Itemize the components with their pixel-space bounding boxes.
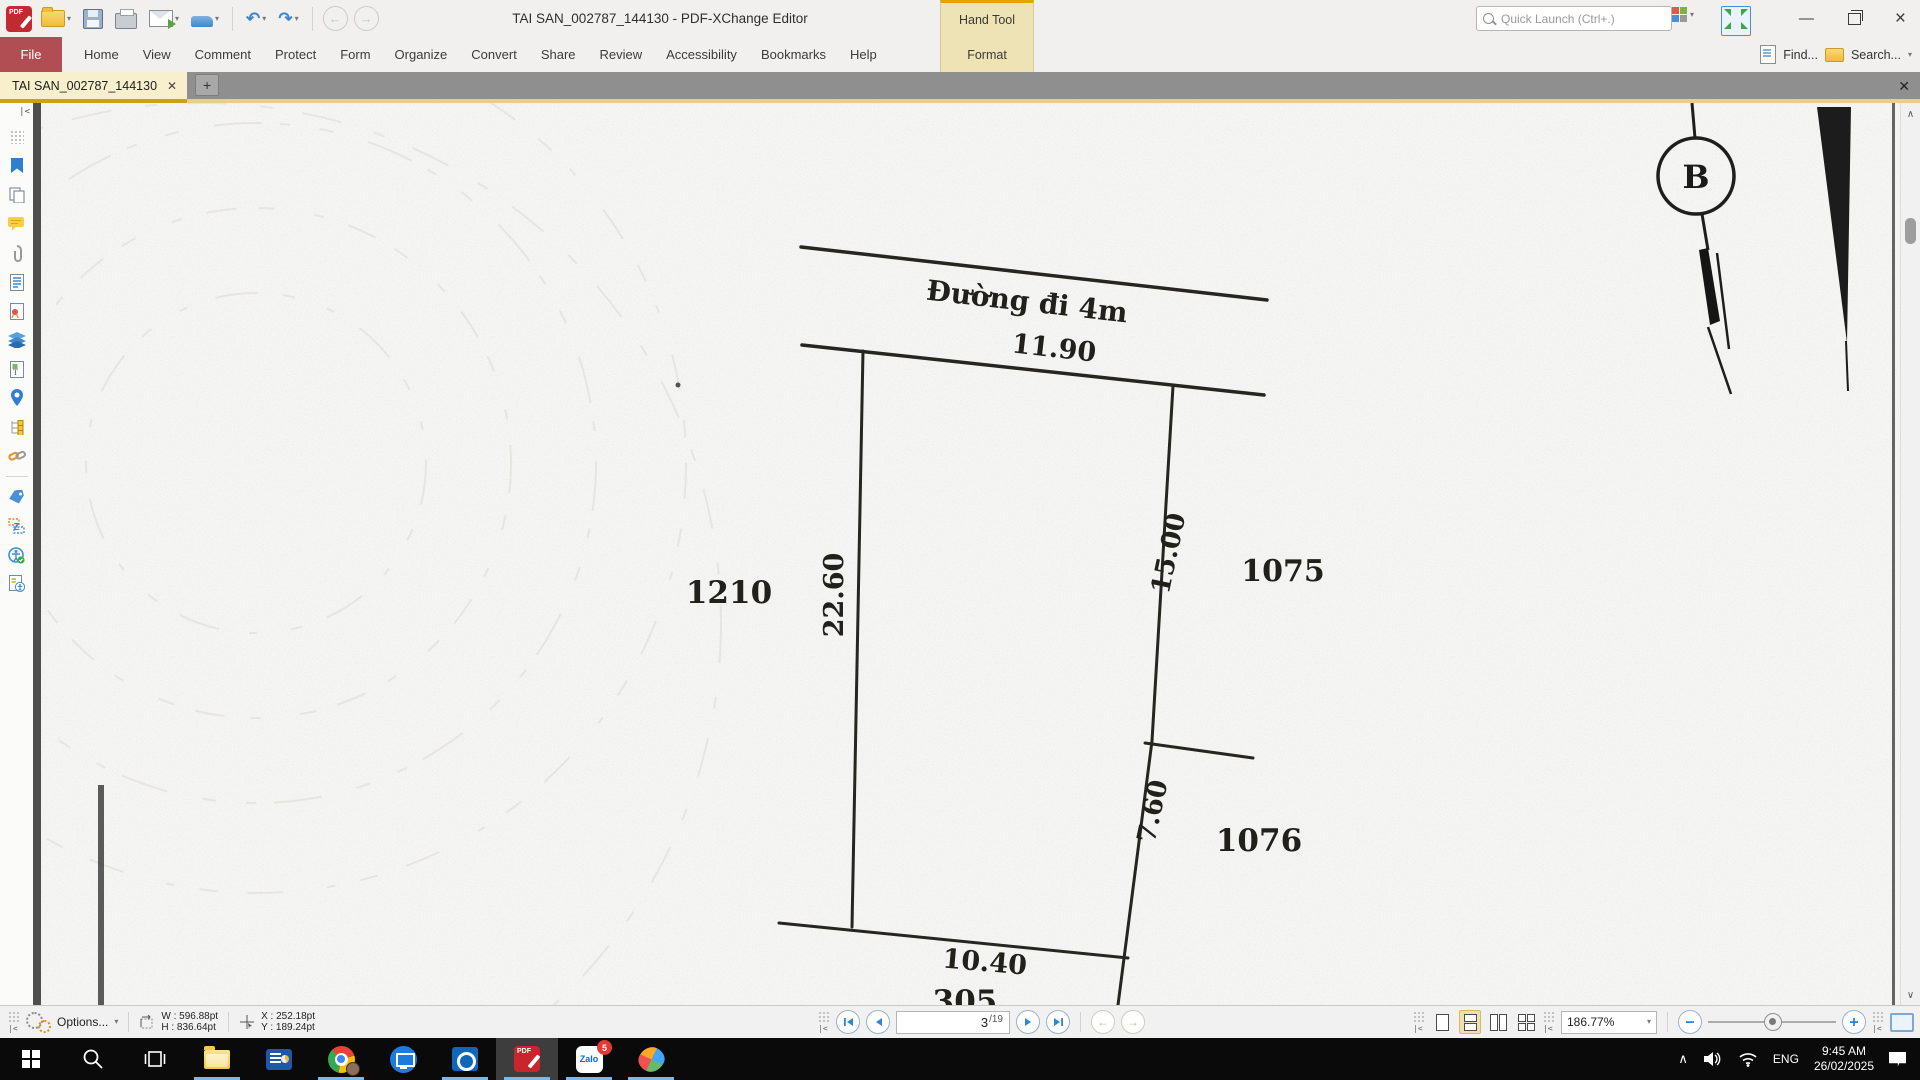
page-number-input[interactable]: 3 /19 (896, 1011, 1010, 1034)
scan-noise (41, 103, 1900, 1005)
wifi-icon[interactable] (1738, 1051, 1758, 1067)
file-explorer-taskbar-icon[interactable] (186, 1038, 248, 1080)
zoom-level-value: 186.77% (1567, 1015, 1614, 1029)
save-icon (83, 9, 103, 29)
print-icon (115, 13, 137, 29)
clock[interactable]: 9:45 AM 26/02/2025 (1814, 1044, 1874, 1074)
collapse-icon[interactable]: |< (1543, 1024, 1553, 1033)
open-folder-icon (41, 10, 65, 27)
view-history-back-button[interactable]: ← (1091, 1010, 1115, 1034)
language-indicator[interactable]: ENG (1773, 1052, 1799, 1066)
volume-icon[interactable] (1703, 1050, 1723, 1068)
menu-convert[interactable]: Convert (459, 37, 529, 72)
collapse-icon[interactable]: |< (1872, 1024, 1882, 1033)
print-button[interactable] (112, 7, 140, 31)
last-page-button[interactable] (1046, 1010, 1070, 1034)
drag-handle-icon[interactable] (818, 1011, 830, 1023)
scroll-up-icon[interactable]: ∧ (1901, 109, 1920, 120)
find-button[interactable]: Find... (1783, 48, 1818, 62)
view-mode-icon[interactable] (1890, 1013, 1914, 1032)
menu-share[interactable]: Share (529, 37, 588, 72)
zoom-slider[interactable] (1708, 1011, 1836, 1033)
single-page-view-button[interactable] (1431, 1010, 1453, 1034)
back-arrow-icon: ← (329, 11, 342, 26)
z-order-panel-icon[interactable]: Z (8, 517, 26, 535)
tray-date: 26/02/2025 (1814, 1059, 1874, 1074)
chrome-profile-avatar (346, 1062, 360, 1076)
quick-launch-input[interactable] (1499, 11, 1653, 27)
layers-panel-icon[interactable] (8, 331, 26, 349)
close-button[interactable]: × (1895, 9, 1906, 28)
history-forward-button[interactable]: → (354, 6, 379, 31)
page-size-icon (139, 1014, 155, 1030)
cursor-x-value: X : 252.18pt (261, 1011, 315, 1022)
pdf-xchange-taskbar-icon[interactable] (496, 1038, 558, 1080)
hand-tool-label: Hand Tool (959, 13, 1015, 27)
photos-taskbar-icon[interactable] (620, 1038, 682, 1080)
page-height-value: H : 836.64pt (161, 1022, 218, 1033)
links-panel-icon[interactable] (8, 447, 26, 465)
document-page[interactable]: B Đường đi 4m 11.90 22.60 1210 15.00 107… (41, 103, 1900, 1005)
monitor-app-icon (390, 1046, 417, 1073)
ui-options-button[interactable]: ▾ (1672, 7, 1694, 23)
order-panel-icon[interactable] (8, 418, 26, 436)
svg-text:T: T (13, 368, 18, 377)
email-button[interactable]: ▾ (146, 8, 182, 29)
open-file-button[interactable]: ▾ (38, 8, 74, 29)
ui-options-icon (1672, 7, 1688, 23)
attachments-panel-icon[interactable] (8, 244, 26, 262)
menu-help[interactable]: Help (838, 37, 889, 72)
scan-dot (676, 383, 681, 388)
presentation-app-taskbar-icon[interactable] (248, 1038, 310, 1080)
scan-right-edge (1892, 103, 1895, 1005)
zoom-out-button[interactable] (1678, 1010, 1702, 1034)
panel-collapse-icon[interactable]: |< (19, 107, 33, 117)
redo-button[interactable]: ↷▾ (275, 8, 301, 29)
collapse-icon[interactable]: |< (818, 1024, 828, 1033)
hidden-icons-chevron[interactable]: ∧ (1678, 1051, 1688, 1067)
chrome-taskbar-icon[interactable] (310, 1038, 372, 1080)
previous-page-button[interactable] (866, 1010, 890, 1034)
find-icon (1760, 45, 1776, 64)
remote-desktop-taskbar-icon[interactable] (372, 1038, 434, 1080)
fullscreen-button[interactable] (1721, 6, 1751, 36)
new-tab-button[interactable]: + (195, 74, 219, 96)
pages-panel-icon[interactable] (8, 186, 26, 204)
drag-handle-icon[interactable] (1413, 1011, 1425, 1023)
menu-protect[interactable]: Protect (263, 37, 328, 72)
drag-handle-icon[interactable] (1872, 1011, 1884, 1023)
parcel-number-right-lower: 1076 (1216, 823, 1302, 859)
email-icon (149, 10, 173, 27)
gears-icon (26, 1012, 51, 1033)
file-explorer-icon (204, 1050, 230, 1069)
sidebar-separator (6, 476, 28, 477)
tabbar-close-button[interactable]: ✕ (1898, 78, 1910, 95)
zalo-taskbar-icon[interactable]: Zalo5 (558, 1038, 620, 1080)
dimension-left: 22.60 (819, 553, 850, 638)
chevron-down-icon[interactable]: ▾ (1908, 51, 1912, 59)
menu-review[interactable]: Review (588, 37, 655, 72)
collapse-icon[interactable]: |< (8, 1024, 18, 1033)
minimize-button[interactable]: — (1799, 11, 1814, 26)
total-pages: /19 (989, 1014, 1003, 1025)
menu-bookmarks[interactable]: Bookmarks (749, 37, 838, 72)
comments-panel-icon[interactable] (8, 215, 26, 233)
forward-arrow-icon: → (360, 11, 373, 26)
menu-comment[interactable]: Comment (183, 37, 263, 72)
page-width-value: W : 596.88pt (161, 1011, 218, 1022)
document-tab-label: TAI SAN_002787_144130 (12, 79, 157, 93)
signatures-panel-icon[interactable] (8, 302, 26, 320)
menu-form[interactable]: Form (328, 37, 382, 72)
presentation-app-icon (266, 1049, 292, 1070)
pdf-xchange-editor-window: PDF ▾ ▾ ▾ ↶▾ ↷▾ ← → TAI SAN_002787_14413… (0, 0, 1920, 1080)
status-bar: |< Options... ▾ W : 596.88pt H : 836.64p… (0, 1005, 1920, 1038)
app-logo-icon[interactable]: PDF (6, 6, 32, 32)
parcel-number-right-upper: 1075 (1241, 554, 1325, 589)
search-folder-icon (1825, 48, 1844, 62)
first-page-button[interactable] (836, 1010, 860, 1034)
next-page-button[interactable] (1016, 1010, 1040, 1034)
cadastral-drawing: B Đường đi 4m 11.90 22.60 1210 15.00 107… (41, 103, 1900, 1005)
scan-left-edge (98, 785, 104, 1005)
toolbar-separator (312, 7, 313, 31)
zoom-in-button[interactable] (1842, 1010, 1866, 1034)
pdf-xchange-icon (514, 1046, 540, 1072)
collapse-icon[interactable]: |< (1413, 1024, 1423, 1033)
accessibility-report-icon[interactable] (8, 575, 26, 593)
redo-icon: ↷ (278, 10, 292, 27)
panel-sidebar: |< T Z (0, 103, 33, 1005)
menu-home[interactable]: Home (72, 37, 131, 72)
windows-taskbar: Zalo5 (0, 1038, 1920, 1080)
windows-logo-icon (22, 1050, 40, 1068)
system-tray: ∧ ENG 9:45 AM 26/02/2025 (1678, 1038, 1920, 1080)
current-page: 3 (981, 1015, 988, 1030)
parcel-number-left: 1210 (686, 575, 772, 611)
marker-b-label: B (1682, 158, 1709, 196)
menu-organize[interactable]: Organize (383, 37, 460, 72)
cursor-position-icon (239, 1014, 255, 1030)
scrollbar-thumb[interactable] (1905, 218, 1916, 244)
tab-close-icon[interactable]: ✕ (167, 80, 177, 92)
toolbar-separator (232, 7, 233, 31)
thumbnails-panel-icon[interactable] (8, 128, 26, 146)
quick-launch-box[interactable] (1476, 6, 1672, 31)
vertical-scrollbar[interactable]: ∧ ∨ (1900, 103, 1920, 1005)
zoom-slider-thumb[interactable] (1764, 1013, 1782, 1031)
save-button[interactable] (80, 7, 106, 31)
continuous-view-button[interactable] (1459, 1010, 1481, 1034)
two-page-view-button[interactable] (1487, 1010, 1509, 1034)
photos-app-icon (634, 1042, 667, 1075)
svg-text:Z: Z (14, 522, 20, 533)
search-icon (1483, 13, 1494, 24)
content-panel-icon[interactable] (8, 273, 26, 291)
zoom-level-select[interactable]: 186.77% ▾ (1561, 1011, 1657, 1034)
task-view-button[interactable] (124, 1038, 186, 1080)
chevron-down-icon[interactable]: ▾ (114, 1018, 118, 1026)
fields-panel-icon[interactable]: T (8, 360, 26, 378)
bookmarks-panel-icon[interactable] (8, 157, 26, 175)
outlook-taskbar-icon[interactable] (434, 1038, 496, 1080)
taskbar-search-button[interactable] (62, 1038, 124, 1080)
search-icon (82, 1048, 104, 1070)
drag-handle-icon[interactable] (1543, 1011, 1555, 1023)
destinations-panel-icon[interactable] (8, 389, 26, 407)
action-center-icon[interactable] (1889, 1052, 1906, 1067)
search-button[interactable]: Search... (1851, 48, 1901, 62)
start-button[interactable] (0, 1038, 62, 1080)
undo-button[interactable]: ↶▾ (243, 8, 269, 29)
undo-icon: ↶ (246, 10, 260, 27)
scroll-down-icon[interactable]: ∨ (1901, 990, 1920, 1001)
two-page-continuous-view-button[interactable] (1515, 1010, 1537, 1034)
drag-handle-icon[interactable] (8, 1011, 20, 1023)
dimension-bottom-cut: 305 (933, 984, 998, 1005)
cursor-y-value: Y : 189.24pt (261, 1022, 315, 1033)
task-view-icon (144, 1049, 166, 1069)
zalo-notification-badge: 5 (597, 1040, 612, 1055)
format-tab-label[interactable]: Format (967, 48, 1007, 62)
menu-file[interactable]: File (0, 37, 62, 72)
menu-accessibility[interactable]: Accessibility (654, 37, 749, 72)
history-back-button[interactable]: ← (323, 6, 348, 31)
document-tab[interactable]: TAI SAN_002787_144130 ✕ (0, 72, 187, 103)
menu-view[interactable]: View (131, 37, 183, 72)
document-tab-bar: TAI SAN_002787_144130 ✕ + ✕ (0, 72, 1920, 103)
accessibility-check-icon[interactable] (8, 546, 26, 564)
panel-splitter[interactable] (33, 103, 41, 1005)
window-title: TAI SAN_002787_144130 - PDF-XChange Edit… (400, 0, 920, 37)
options-button[interactable]: Options... (57, 1015, 108, 1029)
maximize-button[interactable] (1848, 13, 1861, 25)
outlook-icon (452, 1047, 478, 1071)
active-tool-box[interactable]: Hand Tool Format (940, 0, 1034, 72)
scan-button[interactable]: ▾ (188, 8, 222, 29)
scanner-icon (191, 16, 213, 27)
tray-time: 9:45 AM (1822, 1044, 1866, 1059)
view-history-forward-button[interactable]: → (1121, 1010, 1145, 1034)
tags-panel-icon[interactable] (8, 488, 26, 506)
